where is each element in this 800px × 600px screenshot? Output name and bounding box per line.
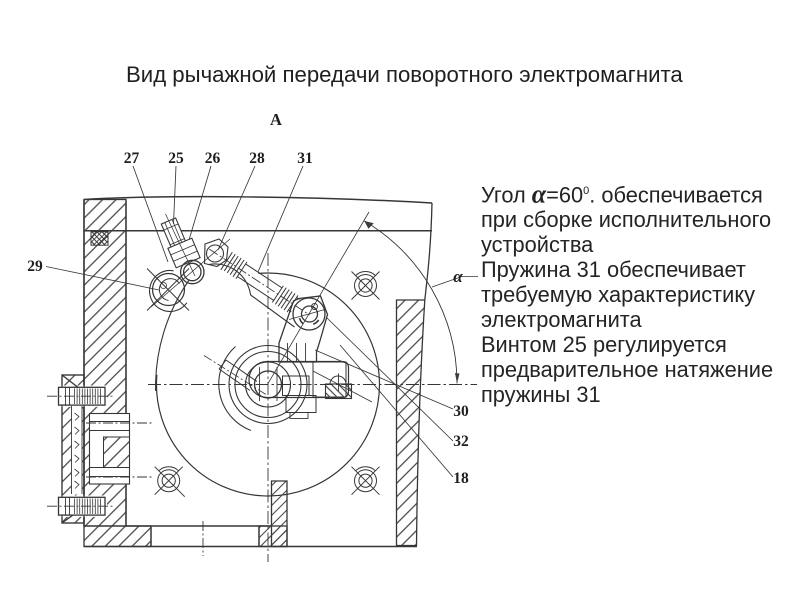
svg-text:31: 31 [297,150,313,167]
svg-text:27: 27 [124,150,140,167]
svg-text:32: 32 [453,433,469,450]
svg-text:25: 25 [168,150,184,167]
svg-text:А: А [270,110,282,129]
svg-text:18: 18 [453,470,469,487]
svg-text:α: α [453,267,463,286]
svg-text:29: 29 [27,258,43,275]
svg-text:30: 30 [453,403,469,420]
svg-text:28: 28 [249,150,265,167]
svg-text:26: 26 [205,150,221,167]
